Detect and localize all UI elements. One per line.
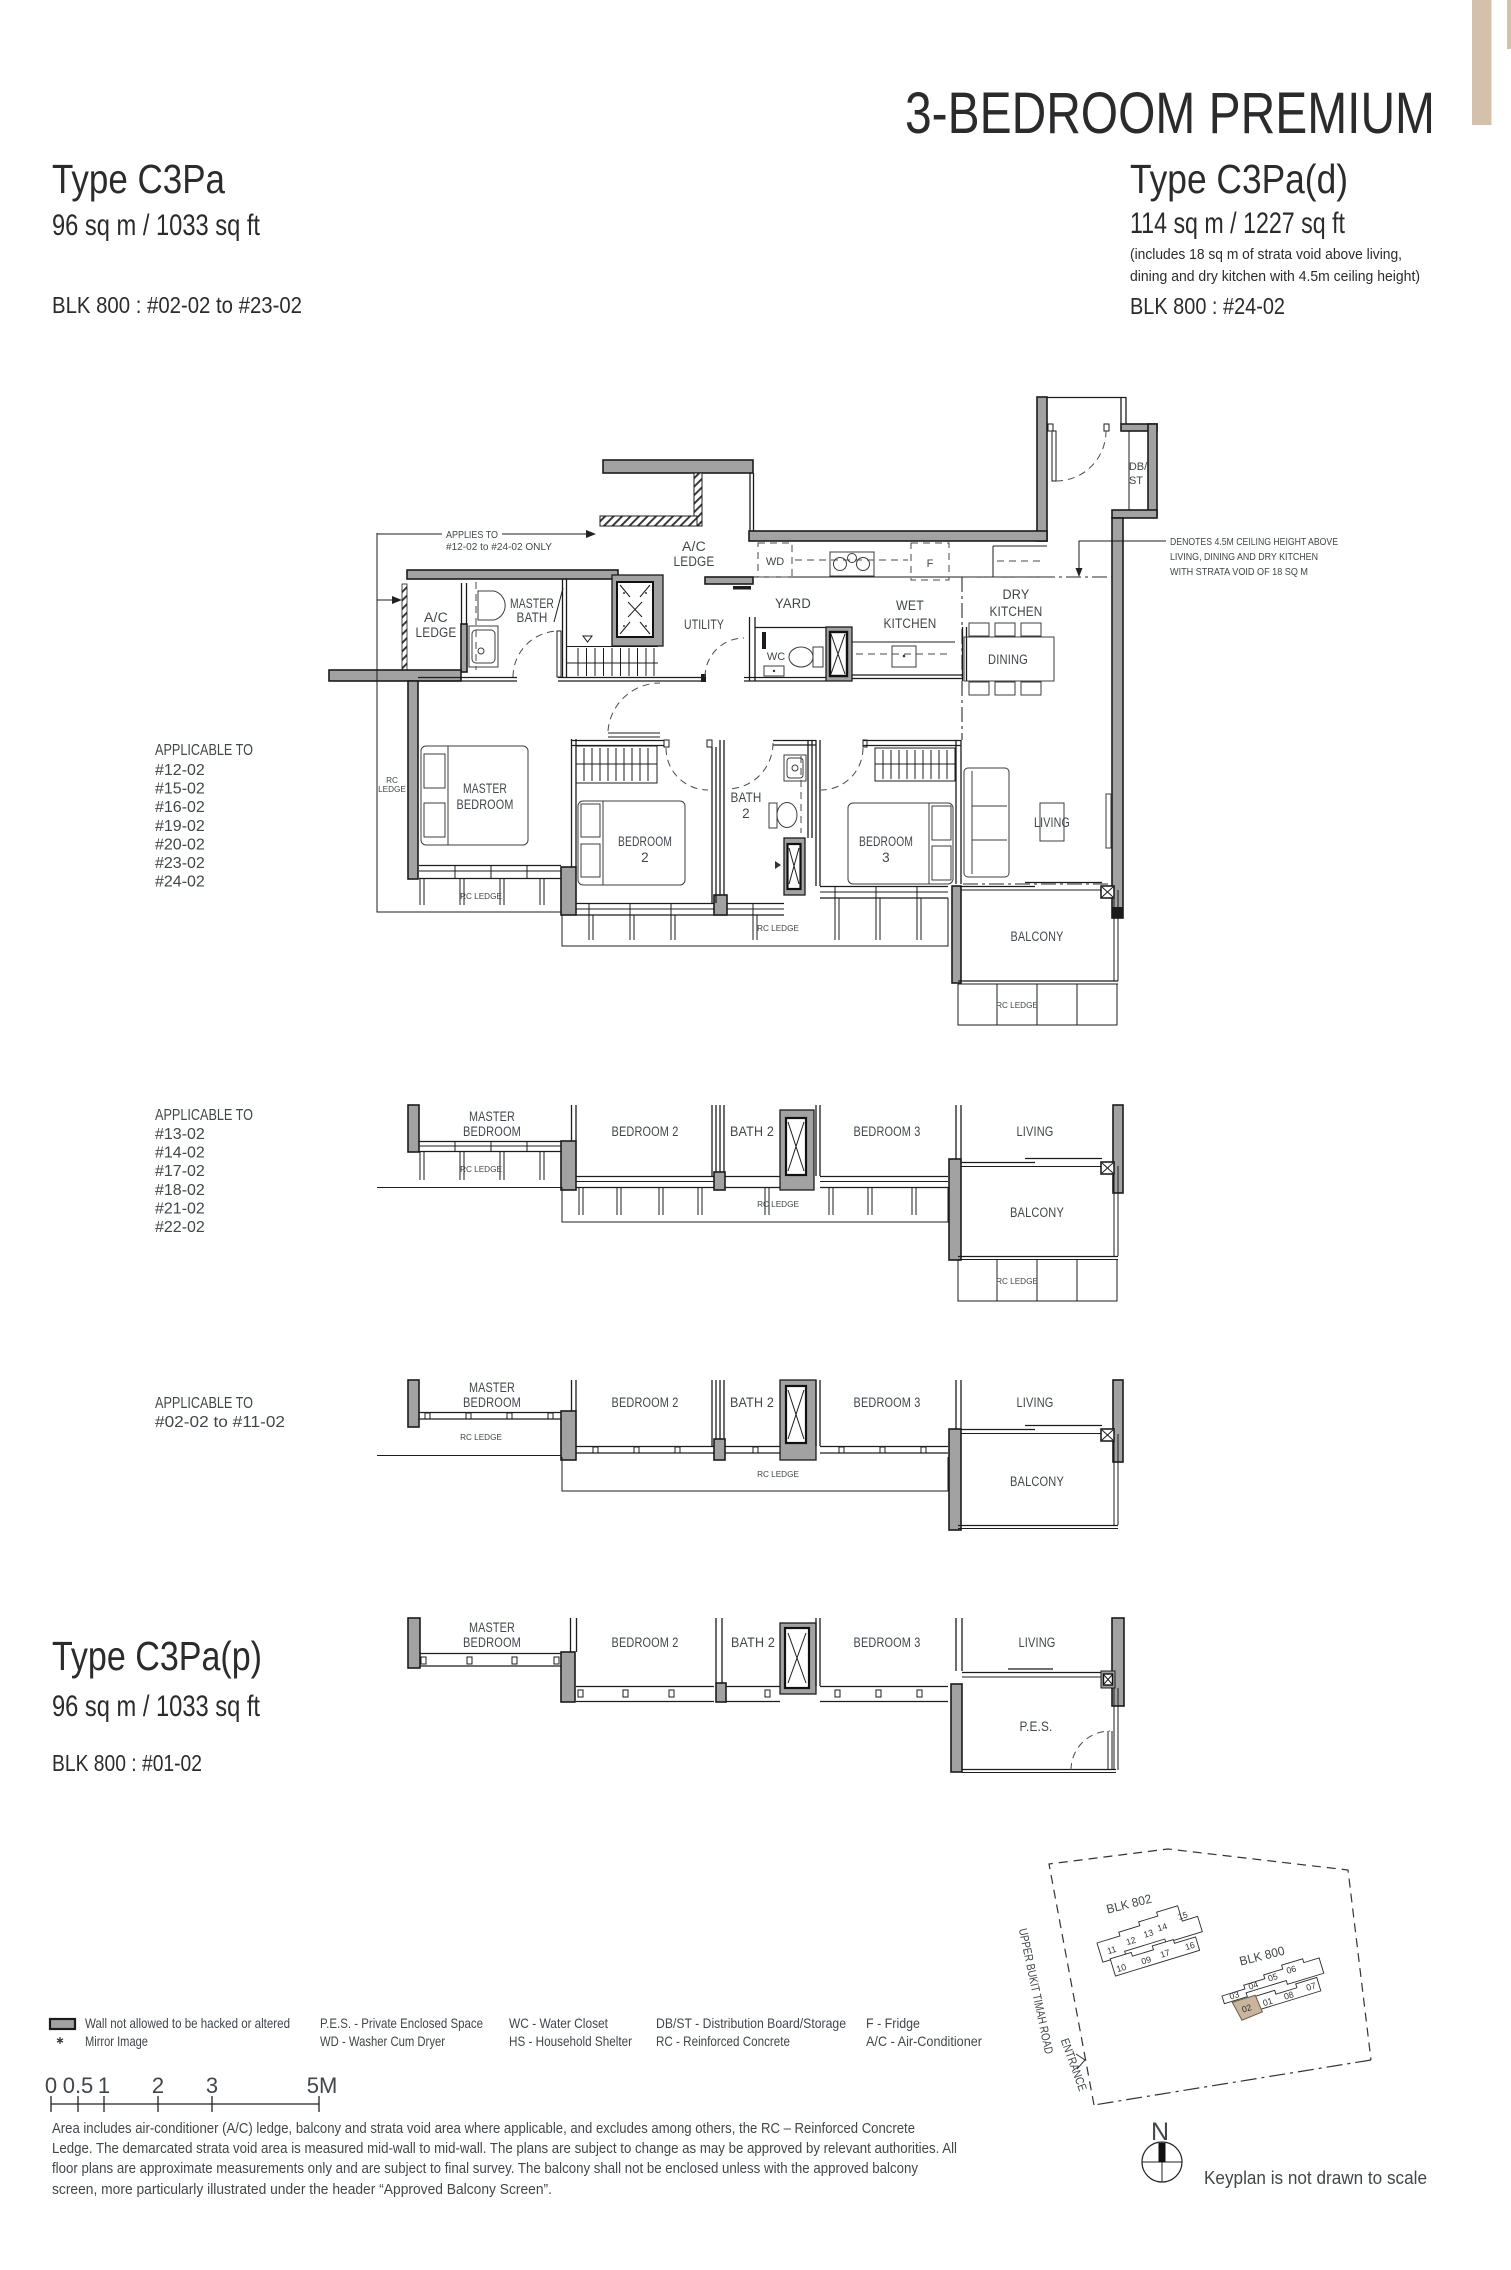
- svg-text:P.E.S. - Private Enclosed Spac: P.E.S. - Private Enclosed Space: [320, 2015, 483, 2031]
- svg-text:APPLIES TO: APPLIES TO: [446, 529, 498, 541]
- svg-text:BATH: BATH: [517, 610, 548, 625]
- svg-text:0.5: 0.5: [63, 2073, 94, 2098]
- svg-text:BATH: BATH: [731, 790, 762, 805]
- svg-text:WITH STRATA VOID OF 18 SQ M: WITH STRATA VOID OF 18 SQ M: [1170, 566, 1308, 578]
- svg-text:BLK 800 : #24-02: BLK 800 : #24-02: [1130, 293, 1285, 319]
- svg-text:BEDROOM 2: BEDROOM 2: [612, 1635, 679, 1650]
- svg-text:BALCONY: BALCONY: [1010, 1205, 1064, 1220]
- svg-text:5M: 5M: [307, 2073, 338, 2098]
- svg-text:A/C: A/C: [682, 539, 706, 554]
- svg-text:#19-02: #19-02: [155, 818, 205, 835]
- svg-text:BEDROOM: BEDROOM: [463, 1635, 521, 1650]
- svg-text:3: 3: [882, 850, 890, 865]
- svg-text:WD - Washer Cum Dryer: WD - Washer Cum Dryer: [320, 2033, 445, 2049]
- svg-text:A/C: A/C: [424, 610, 448, 625]
- svg-text:Type C3Pa(d): Type C3Pa(d): [1130, 156, 1348, 202]
- svg-text:ST: ST: [1129, 475, 1143, 487]
- svg-text:Wall not allowed to be hacked: Wall not allowed to be hacked or altered: [85, 2015, 290, 2031]
- svg-text:BEDROOM 3: BEDROOM 3: [854, 1635, 921, 1650]
- svg-text:BEDROOM: BEDROOM: [463, 1124, 521, 1139]
- svg-text:Type C3Pa(p): Type C3Pa(p): [52, 1633, 262, 1679]
- svg-text:96 sq m / 1033 sq ft: 96 sq m / 1033 sq ft: [52, 1690, 261, 1723]
- svg-text:BLK 800 : #02-02 to #23-02: BLK 800 : #02-02 to #23-02: [52, 292, 302, 318]
- svg-text:BATH 2: BATH 2: [731, 1635, 775, 1650]
- svg-text:KITCHEN: KITCHEN: [990, 604, 1043, 619]
- svg-text:DENOTES 4.5M CEILING HEIGHT AB: DENOTES 4.5M CEILING HEIGHT ABOVE: [1170, 536, 1338, 548]
- svg-text:RC - Reinforced Concrete: RC - Reinforced Concrete: [656, 2033, 790, 2049]
- svg-text:BEDROOM: BEDROOM: [457, 797, 514, 812]
- svg-text:RC LEDGE: RC LEDGE: [460, 892, 502, 901]
- svg-text:#16-02: #16-02: [155, 799, 205, 816]
- svg-text:Keyplan is not drawn to scale: Keyplan is not drawn to scale: [1204, 2168, 1427, 2188]
- svg-text:DRY: DRY: [1003, 587, 1030, 602]
- svg-text:BEDROOM 2: BEDROOM 2: [612, 1395, 679, 1410]
- svg-text:RC LEDGE: RC LEDGE: [460, 1165, 502, 1174]
- svg-text:WD: WD: [766, 556, 784, 568]
- svg-text:MASTER: MASTER: [469, 1380, 515, 1395]
- svg-text:BALCONY: BALCONY: [1010, 1474, 1064, 1489]
- svg-text:#12-02 to #24-02 ONLY: #12-02 to #24-02 ONLY: [446, 541, 552, 553]
- svg-text:YARD: YARD: [775, 596, 811, 611]
- svg-text:WET: WET: [896, 598, 924, 613]
- svg-text:2: 2: [641, 850, 649, 865]
- svg-text:DB/: DB/: [1129, 461, 1148, 473]
- svg-text:HS - Household Shelter: HS - Household Shelter: [509, 2033, 632, 2049]
- svg-text:KITCHEN: KITCHEN: [884, 616, 937, 631]
- svg-text:96 sq m / 1033 sq ft: 96 sq m / 1033 sq ft: [52, 209, 261, 242]
- svg-text:MASTER: MASTER: [469, 1109, 515, 1124]
- svg-text:(includes 18 sq m of strata vo: (includes 18 sq m of strata void above l…: [1130, 247, 1402, 263]
- svg-text:F - Fridge: F - Fridge: [866, 2015, 920, 2031]
- svg-text:BALCONY: BALCONY: [1011, 929, 1064, 944]
- svg-text:0: 0: [45, 2073, 57, 2098]
- svg-text:MASTER: MASTER: [463, 781, 507, 796]
- svg-text:Ledge. The demarcated strata v: Ledge. The demarcated strata void area i…: [52, 2141, 957, 2157]
- svg-text:Area includes air-conditioner: Area includes air-conditioner (A/C) ledg…: [52, 2121, 915, 2137]
- svg-text:114 sq m / 1227 sq ft: 114 sq m / 1227 sq ft: [1130, 207, 1346, 240]
- svg-text:screen, more particularly illu: screen, more particularly illustrated un…: [52, 2182, 552, 2198]
- svg-text:#12-02: #12-02: [155, 762, 205, 779]
- svg-text:BLK 800 : #01-02: BLK 800 : #01-02: [52, 1750, 202, 1776]
- svg-text:LIVING: LIVING: [1019, 1635, 1056, 1650]
- svg-text:RC LEDGE: RC LEDGE: [460, 1433, 502, 1442]
- svg-text:LIVING: LIVING: [1017, 1124, 1054, 1139]
- svg-text:Mirror Image: Mirror Image: [85, 2033, 148, 2049]
- svg-text:LEDGE: LEDGE: [416, 625, 457, 640]
- svg-text:P.E.S.: P.E.S.: [1020, 1719, 1053, 1734]
- svg-text:#17-02: #17-02: [155, 1163, 205, 1180]
- svg-text:BEDROOM: BEDROOM: [859, 834, 913, 849]
- svg-text:#13-02: #13-02: [155, 1126, 205, 1143]
- svg-text:BATH 2: BATH 2: [730, 1395, 774, 1410]
- svg-text:RC LEDGE: RC LEDGE: [757, 1200, 799, 1209]
- svg-text:MASTER: MASTER: [510, 596, 554, 611]
- svg-text:floor plans are approximate me: floor plans are approximate measurements…: [52, 2161, 919, 2177]
- svg-text:3: 3: [206, 2073, 218, 2098]
- svg-text:3-BEDROOM PREMIUM: 3-BEDROOM PREMIUM: [905, 81, 1435, 146]
- svg-text:RC LEDGE: RC LEDGE: [996, 1001, 1038, 1010]
- svg-text:LIVING, DINING AND DRY KITCHEN: LIVING, DINING AND DRY KITCHEN: [1170, 551, 1318, 563]
- svg-text:2: 2: [742, 806, 750, 821]
- svg-text:BEDROOM 3: BEDROOM 3: [854, 1395, 921, 1410]
- svg-text:dining and dry kitchen with 4.: dining and dry kitchen with 4.5m ceiling…: [1130, 269, 1420, 285]
- svg-text:1: 1: [98, 2073, 110, 2098]
- svg-text:RC LEDGE: RC LEDGE: [757, 1470, 799, 1479]
- svg-text:APPLICABLE TO: APPLICABLE TO: [155, 742, 253, 759]
- svg-text:#02-02 to #11-02: #02-02 to #11-02: [155, 1414, 285, 1431]
- svg-text:BEDROOM 2: BEDROOM 2: [612, 1124, 679, 1139]
- svg-text:MASTER: MASTER: [469, 1620, 515, 1635]
- svg-text:WC - Water Closet: WC - Water Closet: [509, 2015, 608, 2031]
- svg-text:BEDROOM: BEDROOM: [618, 834, 672, 849]
- svg-text:#24-02: #24-02: [155, 874, 205, 891]
- svg-text:RC: RC: [386, 776, 398, 785]
- svg-text:#21-02: #21-02: [155, 1200, 205, 1217]
- svg-text:UTILITY: UTILITY: [684, 617, 724, 632]
- svg-text:#14-02: #14-02: [155, 1145, 205, 1162]
- svg-text:#23-02: #23-02: [155, 855, 205, 872]
- svg-text:A/C - Air-Conditioner: A/C - Air-Conditioner: [866, 2033, 982, 2049]
- svg-text:LEDGE: LEDGE: [378, 785, 406, 794]
- svg-text:RC LEDGE: RC LEDGE: [996, 1277, 1038, 1286]
- svg-text:#18-02: #18-02: [155, 1182, 205, 1199]
- svg-text:2: 2: [152, 2073, 164, 2098]
- svg-text:WC: WC: [767, 651, 785, 663]
- svg-text:APPLICABLE TO: APPLICABLE TO: [155, 1395, 253, 1412]
- svg-text:DINING: DINING: [988, 652, 1028, 667]
- svg-text:BEDROOM: BEDROOM: [463, 1395, 521, 1410]
- svg-text:DB/ST - Distribution Board/Sto: DB/ST - Distribution Board/Storage: [656, 2015, 846, 2031]
- svg-text:BATH 2: BATH 2: [730, 1124, 774, 1139]
- svg-text:#20-02: #20-02: [155, 836, 205, 853]
- svg-text:#15-02: #15-02: [155, 781, 205, 798]
- svg-text:BEDROOM 3: BEDROOM 3: [854, 1124, 921, 1139]
- svg-text:#22-02: #22-02: [155, 1219, 205, 1236]
- svg-text:LIVING: LIVING: [1017, 1395, 1054, 1410]
- svg-text:RC LEDGE: RC LEDGE: [757, 924, 799, 933]
- svg-text:APPLICABLE TO: APPLICABLE TO: [155, 1107, 253, 1124]
- svg-text:LIVING: LIVING: [1034, 815, 1070, 830]
- svg-text:Type C3Pa: Type C3Pa: [52, 156, 225, 202]
- svg-text:F: F: [927, 558, 934, 570]
- svg-text:LEDGE: LEDGE: [674, 554, 715, 569]
